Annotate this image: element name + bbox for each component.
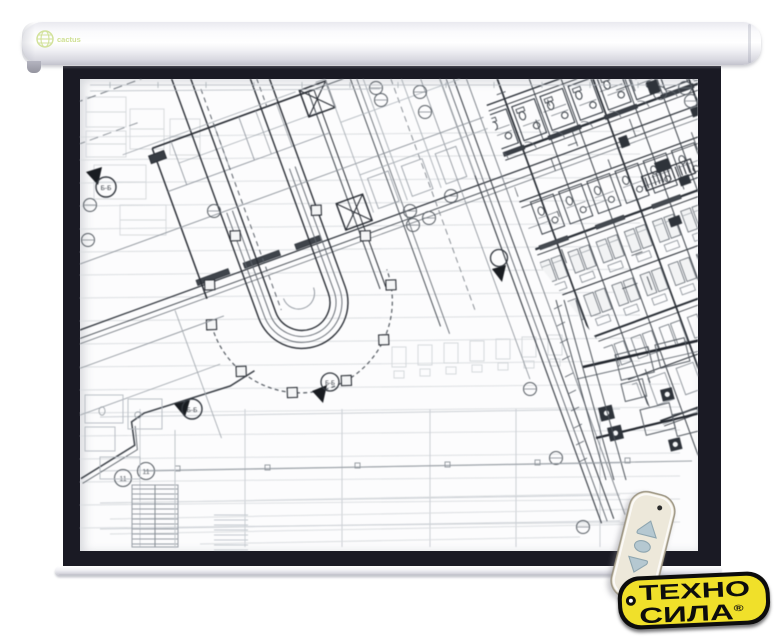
svg-text:11: 11 (142, 469, 149, 476)
svg-text:11: 11 (119, 476, 126, 483)
svg-text:Б-Б: Б-Б (325, 381, 335, 387)
svg-text:cactus: cactus (57, 35, 81, 44)
svg-text:Б-Б: Б-Б (187, 407, 198, 414)
svg-text:Б-Б: Б-Б (101, 185, 112, 192)
